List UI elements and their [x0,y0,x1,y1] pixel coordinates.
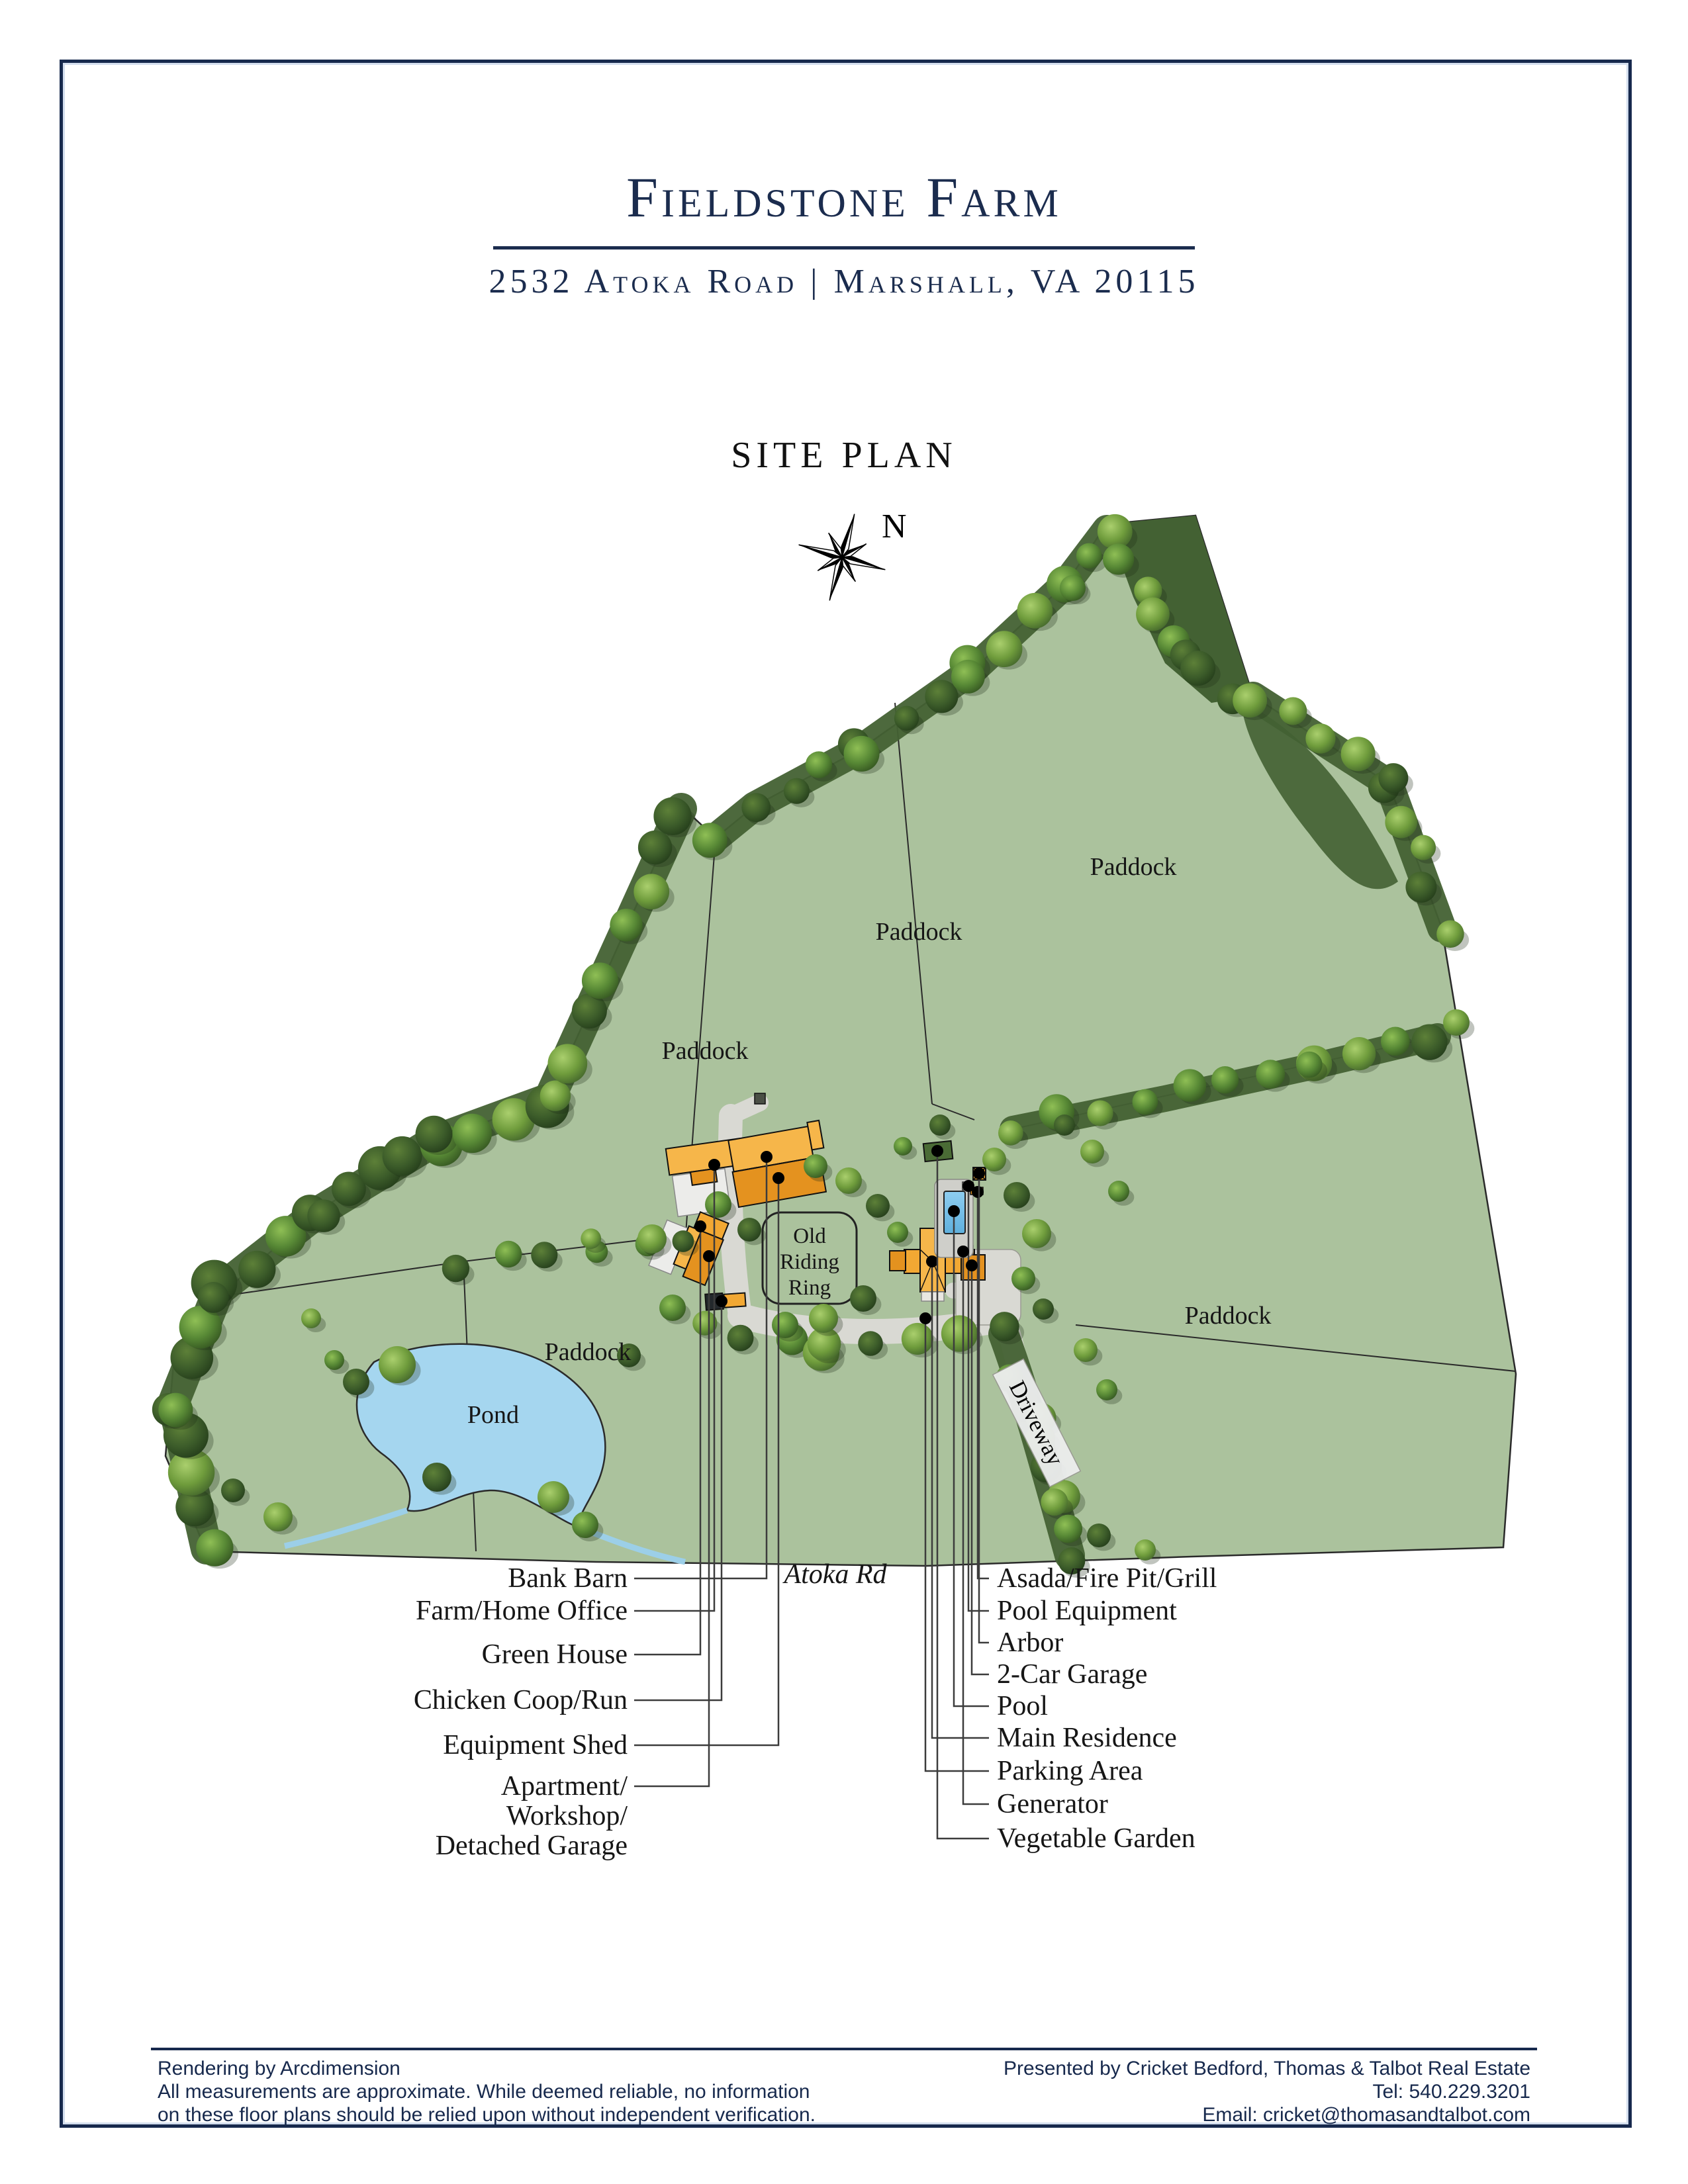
leader-dot [919,1312,931,1324]
tree-icon [633,874,669,909]
tree-icon [1004,1182,1030,1208]
footer-line: Email: cricket@thomasandtalbot.com [1004,2103,1530,2126]
tree-icon [238,1251,275,1288]
tree-icon [1279,697,1307,725]
tree-icon [784,778,810,804]
tree-icon [610,909,642,941]
tree-icon [1256,1060,1285,1089]
callout-label: Parking Area [997,1756,1143,1786]
tree-icon [727,1325,754,1351]
leader-dot [716,1295,727,1307]
tree-icon [673,1230,694,1252]
leader-dot [694,1220,706,1232]
tree-icon [1033,1298,1054,1320]
tree-icon [422,1463,451,1492]
tree-icon [929,1115,951,1136]
footer-line: All measurements are approximate. While … [158,2080,816,2103]
tree-icon [1296,1052,1323,1078]
tree-icon [986,631,1023,667]
tree-icon [221,1479,245,1502]
footer-line: Tel: 540.229.3201 [1004,2080,1530,2103]
leader-dot [948,1205,960,1217]
footer-line: on these floor plans should be relied up… [158,2103,816,2126]
paddock-label: Paddock [662,1037,749,1065]
tree-icon [835,1167,862,1194]
tree-icon [843,736,879,772]
compass-rose [799,514,886,601]
callout-label: Vegetable Garden [997,1823,1196,1854]
tree-icon [850,1285,876,1312]
tree-icon [638,831,672,864]
tree-icon [1080,1140,1104,1163]
tree-icon [531,1242,557,1268]
riding-ring-label: Riding [780,1250,839,1274]
tree-icon [659,1295,686,1321]
compass-north-label: N [882,508,907,545]
tree-icon [196,1529,233,1567]
tree-icon [1405,872,1436,903]
riding-ring-label: Old [793,1224,826,1248]
callout-label: Arbor [997,1627,1063,1658]
tree-icon [705,1191,731,1218]
tree-icon [1017,593,1053,629]
tree-icon [982,1148,1006,1171]
tree-icon [1132,1089,1158,1115]
callout-label: Generator [997,1789,1108,1819]
tree-icon [925,680,958,713]
callout-label: Workshop/ [506,1801,628,1831]
tree-icon [581,1228,601,1249]
tree-icon [379,1346,416,1383]
callout-label: Green House [482,1639,628,1670]
callout-label: Pool Equipment [997,1596,1177,1626]
tree-icon [1180,651,1215,686]
leader-dot [931,1145,943,1157]
tree-icon [540,1081,571,1111]
callout-label: Apartment/ [501,1771,628,1801]
tree-icon [1054,1115,1075,1136]
tree-icon [637,1224,667,1253]
tree-icon [1074,1338,1098,1362]
footer-line: Rendering by Arcdimension [158,2057,816,2080]
tree-icon [453,1114,492,1153]
tree-icon [343,1369,369,1395]
tree-icon [1411,1024,1447,1060]
leader-dot [962,1180,974,1192]
tree-icon [1411,835,1436,860]
tree-icon [1341,737,1376,771]
tree-icon [1076,543,1102,569]
tree-icon [1087,1524,1111,1547]
riding-ring-label: Ring [788,1276,831,1300]
leader-dot [926,1255,938,1267]
tree-icon [383,1136,422,1176]
leader-dot [957,1246,969,1257]
callout-label: Bank Barn [508,1563,628,1594]
tree-icon [1054,1515,1082,1543]
tree-icon [1136,598,1170,631]
tree-icon [1233,683,1267,717]
tree-icon [741,793,771,822]
pond-label: Pond [467,1401,519,1429]
tree-icon [806,751,833,778]
footer-line: Presented by Cricket Bedford, Thomas & T… [1004,2057,1530,2080]
tree-icon [495,1241,522,1267]
tree-icon [158,1393,193,1428]
tree-icon [951,660,985,694]
tree-icon [990,1312,1019,1341]
tree-icon [804,1154,827,1178]
footer-disclaimer: Rendering by Arcdimension All measuremen… [158,2057,816,2126]
tree-icon [547,1044,587,1083]
tree-icon [653,797,691,835]
tree-icon [858,1331,883,1356]
tree-icon [887,1222,908,1243]
atoka-road-label: Atoka Rd [782,1559,887,1590]
paddock-label: Paddock [1090,853,1177,881]
tree-icon [1342,1037,1376,1070]
footer-contact: Presented by Cricket Bedford, Thomas & T… [1004,2057,1530,2126]
site-plan-map: NPaddockPaddockPaddockPaddockPaddockPond… [119,483,1589,1899]
tree-icon [809,1304,838,1333]
callout-label: Farm/Home Office [416,1596,628,1626]
tree-icon [692,823,727,858]
tree-icon [1381,1027,1410,1056]
paddock-label: Paddock [545,1338,632,1366]
tree-icon [263,1502,293,1531]
tree-icon [582,962,618,999]
tree-icon [572,1512,598,1538]
tree-icon [1011,1267,1035,1291]
site-plan-heading: SITE PLAN [0,434,1688,477]
tree-icon [1108,1181,1129,1202]
tree-icon [1385,806,1417,839]
tree-icon [198,1282,229,1313]
tree-icon [737,1218,761,1242]
tree-icon [998,1120,1023,1146]
leader-dot [973,1167,985,1179]
leader-dot [703,1250,715,1262]
tree-icon [324,1350,344,1370]
page-subtitle: 2532 Atoka Road | Marshall, VA 20115 [0,262,1688,301]
driveway-path [731,1103,760,1116]
tree-icon [1087,1101,1113,1126]
tree-icon [1443,1009,1470,1036]
tree-icon [301,1308,321,1328]
callout-label: Pool [997,1691,1048,1721]
paddock-label: Paddock [876,918,962,946]
tree-icon [1378,763,1408,793]
tree-icon [538,1481,569,1513]
tree-icon [866,1194,890,1218]
tree-icon [1436,921,1464,948]
callout-label: Chicken Coop/Run [414,1685,628,1715]
tree-icon [1305,723,1335,753]
farm-home-office-wing [690,1169,717,1185]
tree-icon [1211,1066,1239,1093]
tree-icon [902,1323,933,1355]
footer-divider [151,2048,1537,2050]
callout-label: Detached Garage [436,1831,628,1861]
tree-icon [1103,543,1134,574]
tree-icon [1174,1069,1207,1102]
callout-label: Main Residence [997,1723,1177,1753]
tree-icon [1041,1488,1068,1516]
page-title: Fieldstone Farm [0,164,1688,230]
tree-icon [772,1312,798,1338]
tree-icon [307,1199,340,1232]
paddock-label: Paddock [1185,1302,1272,1330]
tree-icon [416,1116,453,1153]
site-plan-page: { "header": { "title": "Fieldstone Farm"… [0,0,1688,2184]
tree-icon [442,1255,469,1282]
title-divider [493,246,1195,250]
callout-label: 2-Car Garage [997,1659,1147,1690]
tree-icon [894,1137,912,1156]
leader-dot [773,1172,784,1184]
leader-dot [966,1259,978,1271]
tree-icon [1135,1539,1156,1561]
tree-icon [1060,575,1086,601]
tree-icon [894,706,919,731]
tree-icon [1022,1219,1051,1248]
tree-icon [1098,514,1133,549]
gate-structure [755,1093,765,1104]
tree-icon [1096,1379,1117,1400]
callout-label: Asada/Fire Pit/Grill [997,1563,1217,1594]
leader-dot [761,1151,773,1163]
leader-dot [708,1159,720,1171]
callout-label: Equipment Shed [443,1730,628,1760]
